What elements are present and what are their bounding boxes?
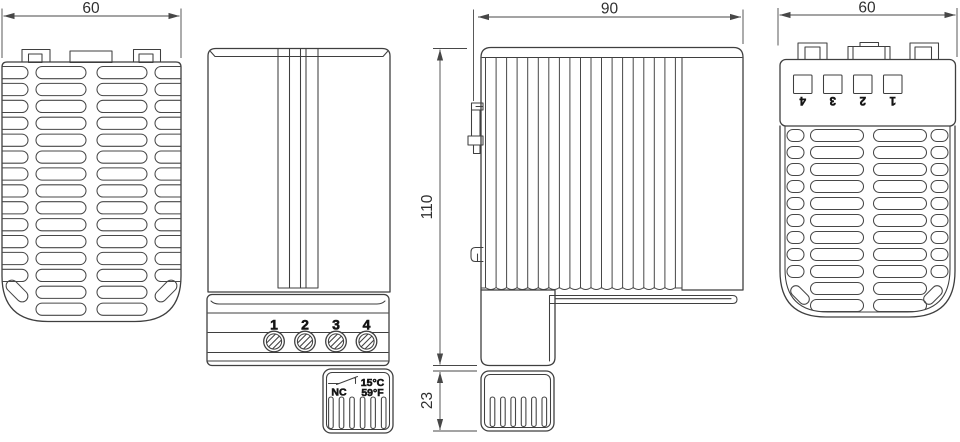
thermostat-height-dimension-label: 23 — [419, 392, 436, 409]
back-terminal-label-3: 3 — [830, 94, 836, 106]
back-terminal-hole-3 — [824, 75, 843, 94]
profile-base-box — [481, 290, 555, 366]
back-tab-right-notch — [915, 47, 932, 60]
back-terminal-hole-4 — [794, 75, 813, 94]
back-tab-left — [798, 43, 827, 60]
side-top-chamfer — [211, 52, 388, 57]
front-body-outline — [2, 62, 181, 322]
mounting-ledge-outline — [550, 296, 738, 304]
thermostat-side-outline — [481, 371, 554, 431]
front-view: 60 — [0, 0, 187, 322]
front-tab-left — [22, 50, 50, 63]
thermostat-height-dimension: 23 — [419, 371, 477, 431]
profile-width-dimension-label: 90 — [601, 1, 619, 18]
terminal-label-4: 4 — [363, 317, 371, 333]
side-view: 1 2 3 4 NC 15°C 59°F — [207, 49, 393, 434]
thermostat-front: NC 15°C 59°F — [323, 369, 393, 433]
cooling-fins-lines — [486, 58, 676, 288]
front-mounting-tabs — [22, 50, 161, 63]
back-tab-right — [910, 43, 939, 60]
back-terminal-hole-1 — [884, 75, 903, 94]
terminal-screws — [264, 331, 377, 352]
back-terminal-panel: 4 3 2 1 — [780, 60, 956, 127]
back-view: 60 4 3 2 1 — [778, 0, 957, 317]
back-mounting-tabs — [798, 43, 939, 60]
thermostat-side-ribs — [490, 397, 546, 427]
back-terminal-hole-2 — [854, 75, 873, 94]
side-body-outline — [208, 49, 390, 293]
back-terminal-label-2: 2 — [860, 94, 866, 106]
back-tab-left-notch — [805, 47, 820, 60]
profile-height-dimension: 110 — [419, 49, 477, 366]
back-terminal-label-1: 1 — [889, 94, 896, 106]
front-tab-right-notch — [139, 54, 153, 63]
din-clip-foot — [474, 145, 481, 154]
back-tab-center-notch — [860, 43, 879, 47]
thermostat-front-ribs — [329, 397, 386, 429]
din-clip-stem — [472, 110, 481, 136]
terminal-block: 1 2 3 4 — [207, 295, 389, 366]
back-panel-outline — [780, 60, 956, 127]
back-tab-center-lines — [853, 47, 885, 60]
heater-channel-lines — [278, 49, 318, 288]
front-tab-center — [70, 51, 112, 63]
thermostat-side — [481, 371, 554, 431]
technical-drawing: 60 1 2 3 4 NC — [0, 0, 960, 442]
cooling-fins — [481, 58, 682, 290]
front-tab-left-notch — [29, 54, 43, 63]
front-grille-slots — [0, 67, 187, 316]
terminal-label-1: 1 — [270, 317, 278, 333]
profile-height-dimension-label: 110 — [419, 194, 436, 219]
back-terminal-label-4: 4 — [799, 94, 806, 106]
back-grille-slots — [787, 130, 948, 312]
front-width-dimension-label: 60 — [82, 0, 100, 17]
front-tab-right — [134, 50, 161, 63]
thermostat-contact-label: NC — [331, 387, 347, 399]
profile-view: 90 110 23 — [419, 1, 743, 432]
terminal-block-inset — [211, 301, 385, 304]
back-tab-center — [848, 47, 890, 60]
terminal-label-3: 3 — [332, 317, 340, 333]
profile-width-dimension: 90 — [474, 1, 744, 102]
back-body-outline — [780, 126, 955, 317]
mounting-ledge — [550, 296, 738, 304]
thermostat-switch-icon — [329, 377, 358, 385]
back-width-dimension-label: 60 — [858, 0, 876, 17]
terminal-label-2: 2 — [301, 317, 309, 333]
cooling-fins-edge — [481, 288, 682, 290]
